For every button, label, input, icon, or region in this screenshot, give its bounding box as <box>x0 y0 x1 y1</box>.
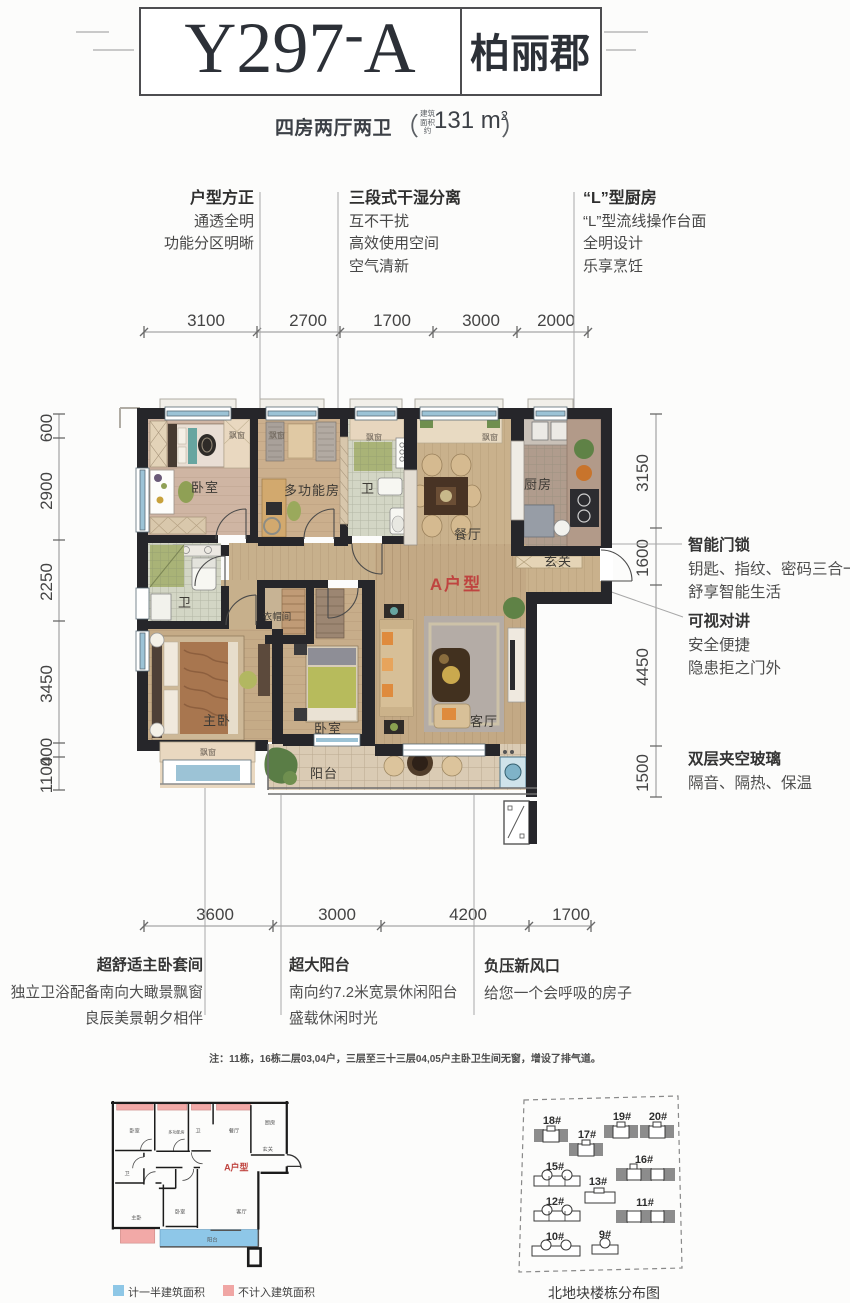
svg-text:A户型: A户型 <box>430 574 482 594</box>
svg-text:餐厅: 餐厅 <box>229 1127 239 1135</box>
svg-text:卧室: 卧室 <box>191 480 219 495</box>
svg-text:餐厅: 餐厅 <box>454 527 482 542</box>
svg-text:衣帽间: 衣帽间 <box>263 611 292 623</box>
svg-text:卧室: 卧室 <box>129 1127 139 1135</box>
svg-text:飘窗: 飘窗 <box>229 430 245 440</box>
svg-text:卫: 卫 <box>124 1170 129 1177</box>
svg-text:19#: 19# <box>613 1111 631 1123</box>
svg-text:20#: 20# <box>649 1111 667 1123</box>
svg-text:客厅: 客厅 <box>236 1207 246 1215</box>
svg-text:主卧: 主卧 <box>203 713 231 728</box>
svg-text:12#: 12# <box>546 1196 564 1208</box>
svg-text:17#: 17# <box>578 1129 596 1141</box>
svg-text:15#: 15# <box>546 1161 564 1173</box>
svg-text:玄关: 玄关 <box>544 554 572 569</box>
svg-text:A户型: A户型 <box>224 1162 248 1173</box>
svg-text:多功能房: 多功能房 <box>168 1128 184 1134</box>
svg-text:卫: 卫 <box>178 595 192 610</box>
svg-text:卫: 卫 <box>196 1128 201 1135</box>
svg-text:客厅: 客厅 <box>470 714 498 729</box>
svg-text:卧室: 卧室 <box>314 721 342 736</box>
svg-text:阳台: 阳台 <box>310 766 338 781</box>
svg-text:9#: 9# <box>599 1229 611 1241</box>
svg-text:16#: 16# <box>635 1154 653 1166</box>
svg-text:飘窗: 飘窗 <box>482 432 498 442</box>
svg-text:卧室: 卧室 <box>175 1207 185 1215</box>
svg-text:卫: 卫 <box>361 481 375 496</box>
svg-text:10#: 10# <box>546 1231 564 1243</box>
svg-text:11#: 11# <box>636 1197 654 1209</box>
svg-text:飘窗: 飘窗 <box>269 430 285 440</box>
svg-text:主卧: 主卧 <box>131 1214 142 1222</box>
svg-text:18#: 18# <box>543 1115 561 1127</box>
svg-text:厨房: 厨房 <box>265 1118 275 1126</box>
svg-text:玄关: 玄关 <box>262 1145 273 1153</box>
svg-text:飘窗: 飘窗 <box>366 432 382 442</box>
svg-text:13#: 13# <box>589 1176 607 1188</box>
svg-text:多功能房: 多功能房 <box>284 483 340 498</box>
svg-text:飘窗: 飘窗 <box>200 747 216 757</box>
svg-text:厨房: 厨房 <box>524 477 552 492</box>
